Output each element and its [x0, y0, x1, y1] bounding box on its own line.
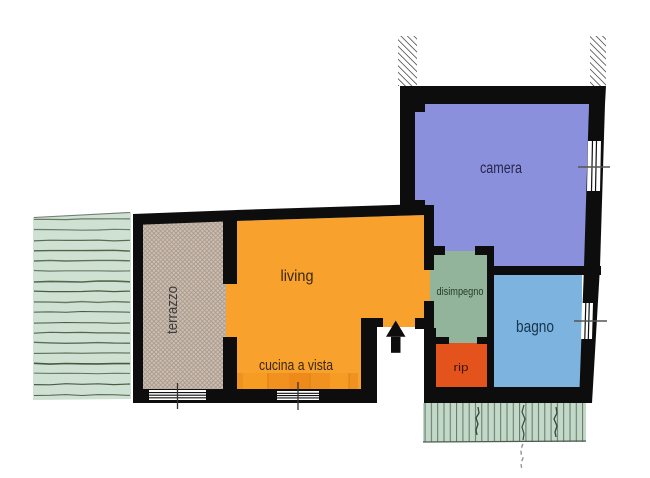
svg-text:living: living [281, 268, 314, 285]
svg-text:cucina a vista: cucina a vista [259, 357, 334, 374]
svg-text:rip: rip [454, 362, 469, 374]
svg-text:disimpegno: disimpegno [437, 286, 484, 298]
svg-text:camera: camera [480, 160, 522, 177]
svg-text:bagno: bagno [516, 318, 554, 336]
svg-text:terrazzo: terrazzo [165, 286, 181, 334]
